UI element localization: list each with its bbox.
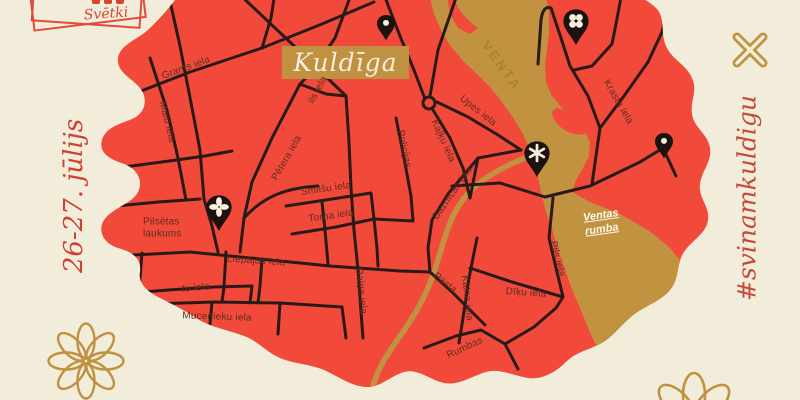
flower-ornament-icon bbox=[49, 324, 124, 399]
square-label-pilsetas-laukums: Pilsētas laukums bbox=[143, 217, 195, 240]
dot-pin-icon bbox=[661, 138, 667, 144]
city-name: Kuldīga bbox=[293, 48, 397, 77]
hashtag-text: #svinamkuldigu bbox=[733, 95, 762, 301]
event-dates-text: 26-27. jūlijs bbox=[59, 119, 89, 273]
roundabout-node bbox=[423, 97, 435, 109]
festival-logo-partial-glyphs bbox=[92, 0, 124, 4]
festival-map-poster: Kuldīga VENTA Ventas rumba Grants iela M… bbox=[0, 0, 800, 400]
dot-pin-icon bbox=[383, 20, 389, 26]
city-name-box: Kuldīga bbox=[282, 46, 409, 79]
x-ornament-icon bbox=[737, 37, 763, 63]
festival-logo-subtitle: Svētki bbox=[83, 4, 128, 23]
street-label-tu: tu iela bbox=[182, 282, 211, 295]
flower-ornament-icon bbox=[647, 373, 741, 400]
